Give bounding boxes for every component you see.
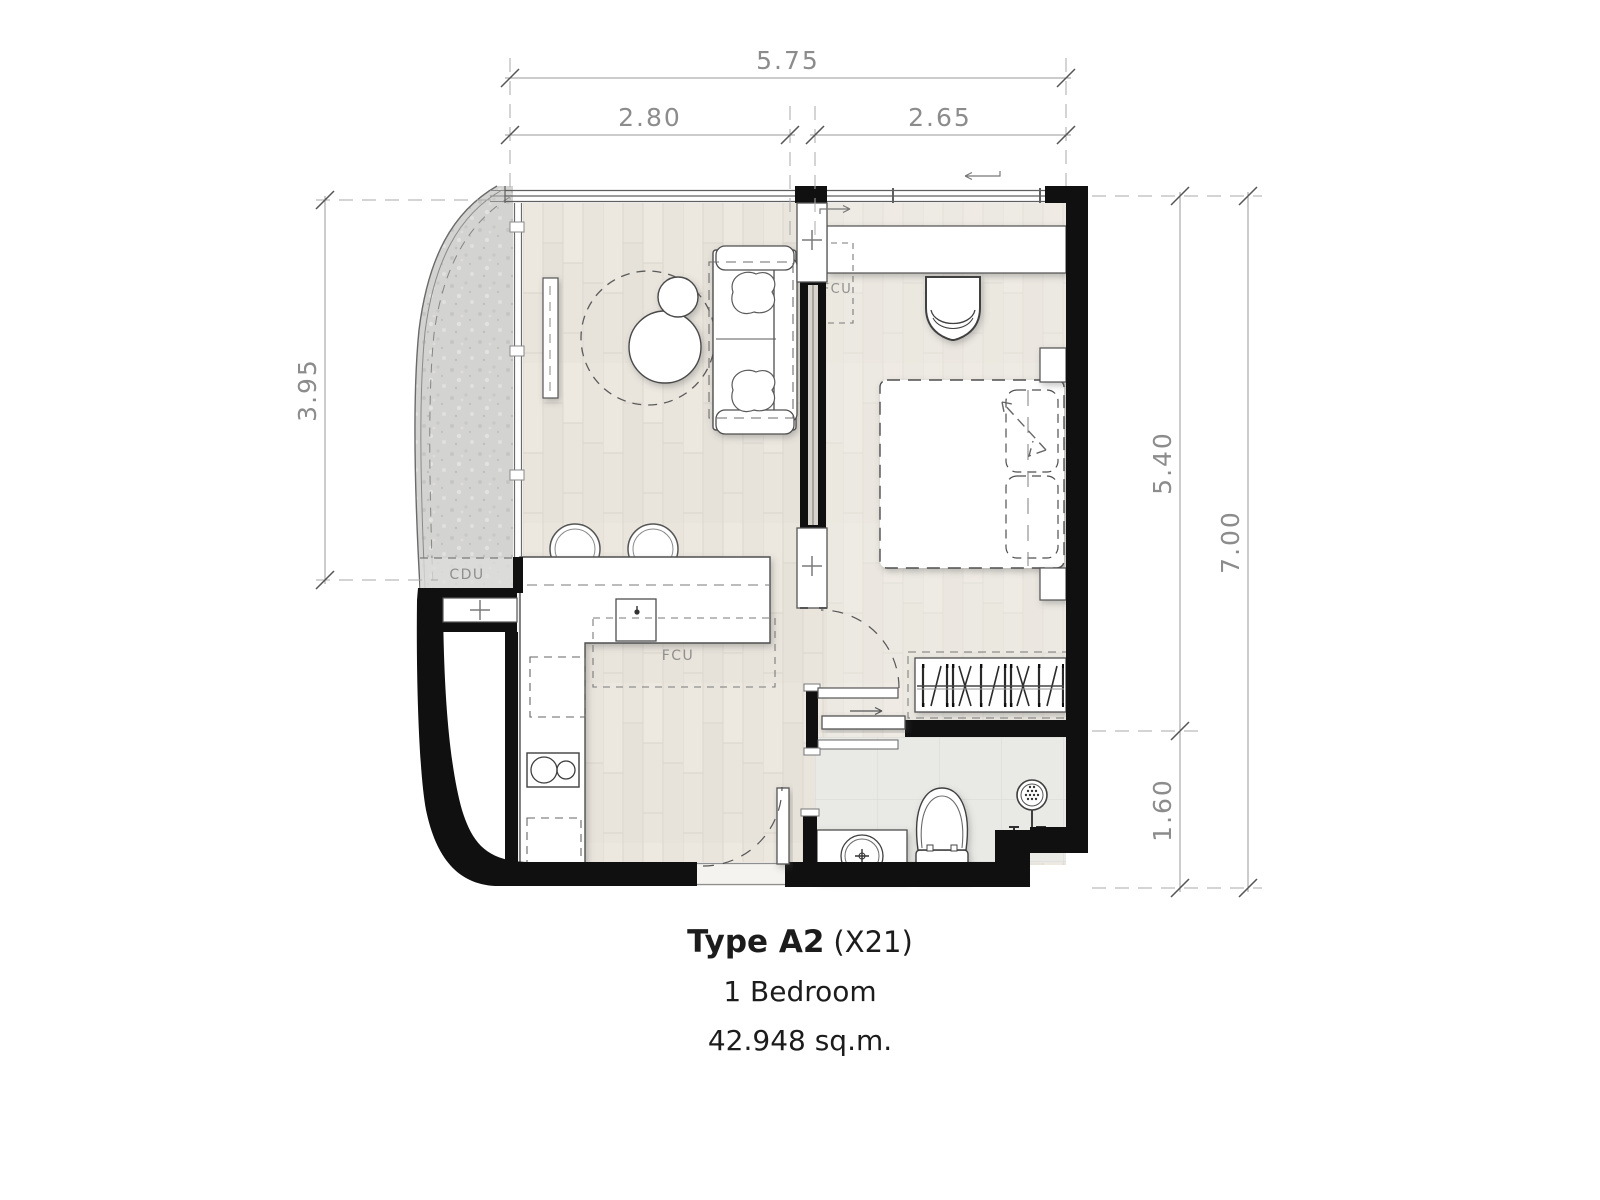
- dim-right-lower: 1.60: [1148, 778, 1177, 842]
- wall-kitchen-inner: [505, 632, 518, 862]
- fcu-bedroom-label: FCU: [822, 282, 853, 297]
- wall-bath-top: [905, 720, 1066, 737]
- dim-top-right: 2.65: [908, 103, 972, 132]
- sofa-armrest-bottom: [716, 410, 794, 434]
- kitchen-sink: [616, 599, 656, 641]
- dim-right-upper: 5.40: [1148, 431, 1177, 495]
- bedroom-door-leaf: [818, 688, 898, 698]
- window-top-bedroom: [827, 188, 1066, 203]
- wall-post-bath-lower: [803, 815, 817, 886]
- sliding-door-panel: [822, 716, 905, 729]
- sofa: [709, 246, 797, 434]
- wall-post-bath-upper: [806, 690, 818, 750]
- door-track-lower: [818, 740, 898, 749]
- dim-right-total: 7.00: [1216, 510, 1245, 574]
- dim-top-total: 5.75: [756, 46, 820, 75]
- bed: [880, 380, 1064, 568]
- plan-title-bold: Type A2: [687, 924, 824, 960]
- plan-bedrooms: 1 Bedroom: [723, 975, 876, 1008]
- sofa-armrest-top: [716, 246, 794, 270]
- floor-plan-page: CDU: [0, 0, 1600, 1200]
- wall-duct-bottom: [443, 622, 517, 632]
- tv-console: [543, 278, 558, 398]
- wall-right: [1066, 186, 1088, 827]
- wall-bottom-left: [515, 862, 697, 886]
- toilet-bowl: [917, 788, 968, 850]
- closet: [915, 658, 1066, 712]
- cdu-label: CDU: [449, 567, 484, 583]
- pillow-bottom: [1006, 476, 1058, 558]
- plan-title: Type A2(X21): [687, 924, 913, 960]
- wall-bath-step-upper: [1030, 827, 1088, 853]
- fcu-kitchen-label: FCU: [662, 648, 695, 664]
- caption: Type A2(X21) 1 Bedroom 42.948 sq.m.: [687, 924, 913, 1057]
- desk-chair: [926, 277, 980, 340]
- plan-title-suffix: (X21): [833, 925, 912, 959]
- wall-stub-balcony: [513, 557, 523, 593]
- wall-top-partition-block: [795, 186, 827, 203]
- nightstand-bottom: [1040, 568, 1066, 600]
- wall-bath-bottom: [785, 862, 1010, 887]
- bedroom-desk: [827, 226, 1066, 273]
- balcony: CDU: [415, 186, 513, 588]
- entrance-door-leaf: [777, 788, 789, 864]
- sofa-pillow-top: [732, 272, 775, 313]
- balcony-floor: [415, 186, 513, 588]
- dim-left-height: 3.95: [293, 358, 322, 422]
- duct-box: [443, 598, 517, 622]
- wall-under-cdu: [418, 588, 517, 598]
- plan-area: 42.948 sq.m.: [708, 1024, 892, 1057]
- stove: [527, 753, 579, 787]
- dim-top-left: 2.80: [618, 103, 682, 132]
- nightstand-top: [1040, 348, 1066, 382]
- window-arrow-left-icon: [965, 171, 1000, 180]
- closet-hangers: [917, 660, 1064, 710]
- sofa-pillow-bottom: [732, 370, 775, 411]
- small-table: [658, 277, 698, 317]
- pillow-top: [1006, 390, 1058, 472]
- window-top-living: [505, 186, 795, 203]
- coffee-table: [629, 311, 701, 383]
- floor-plan: CDU: [0, 0, 1600, 1200]
